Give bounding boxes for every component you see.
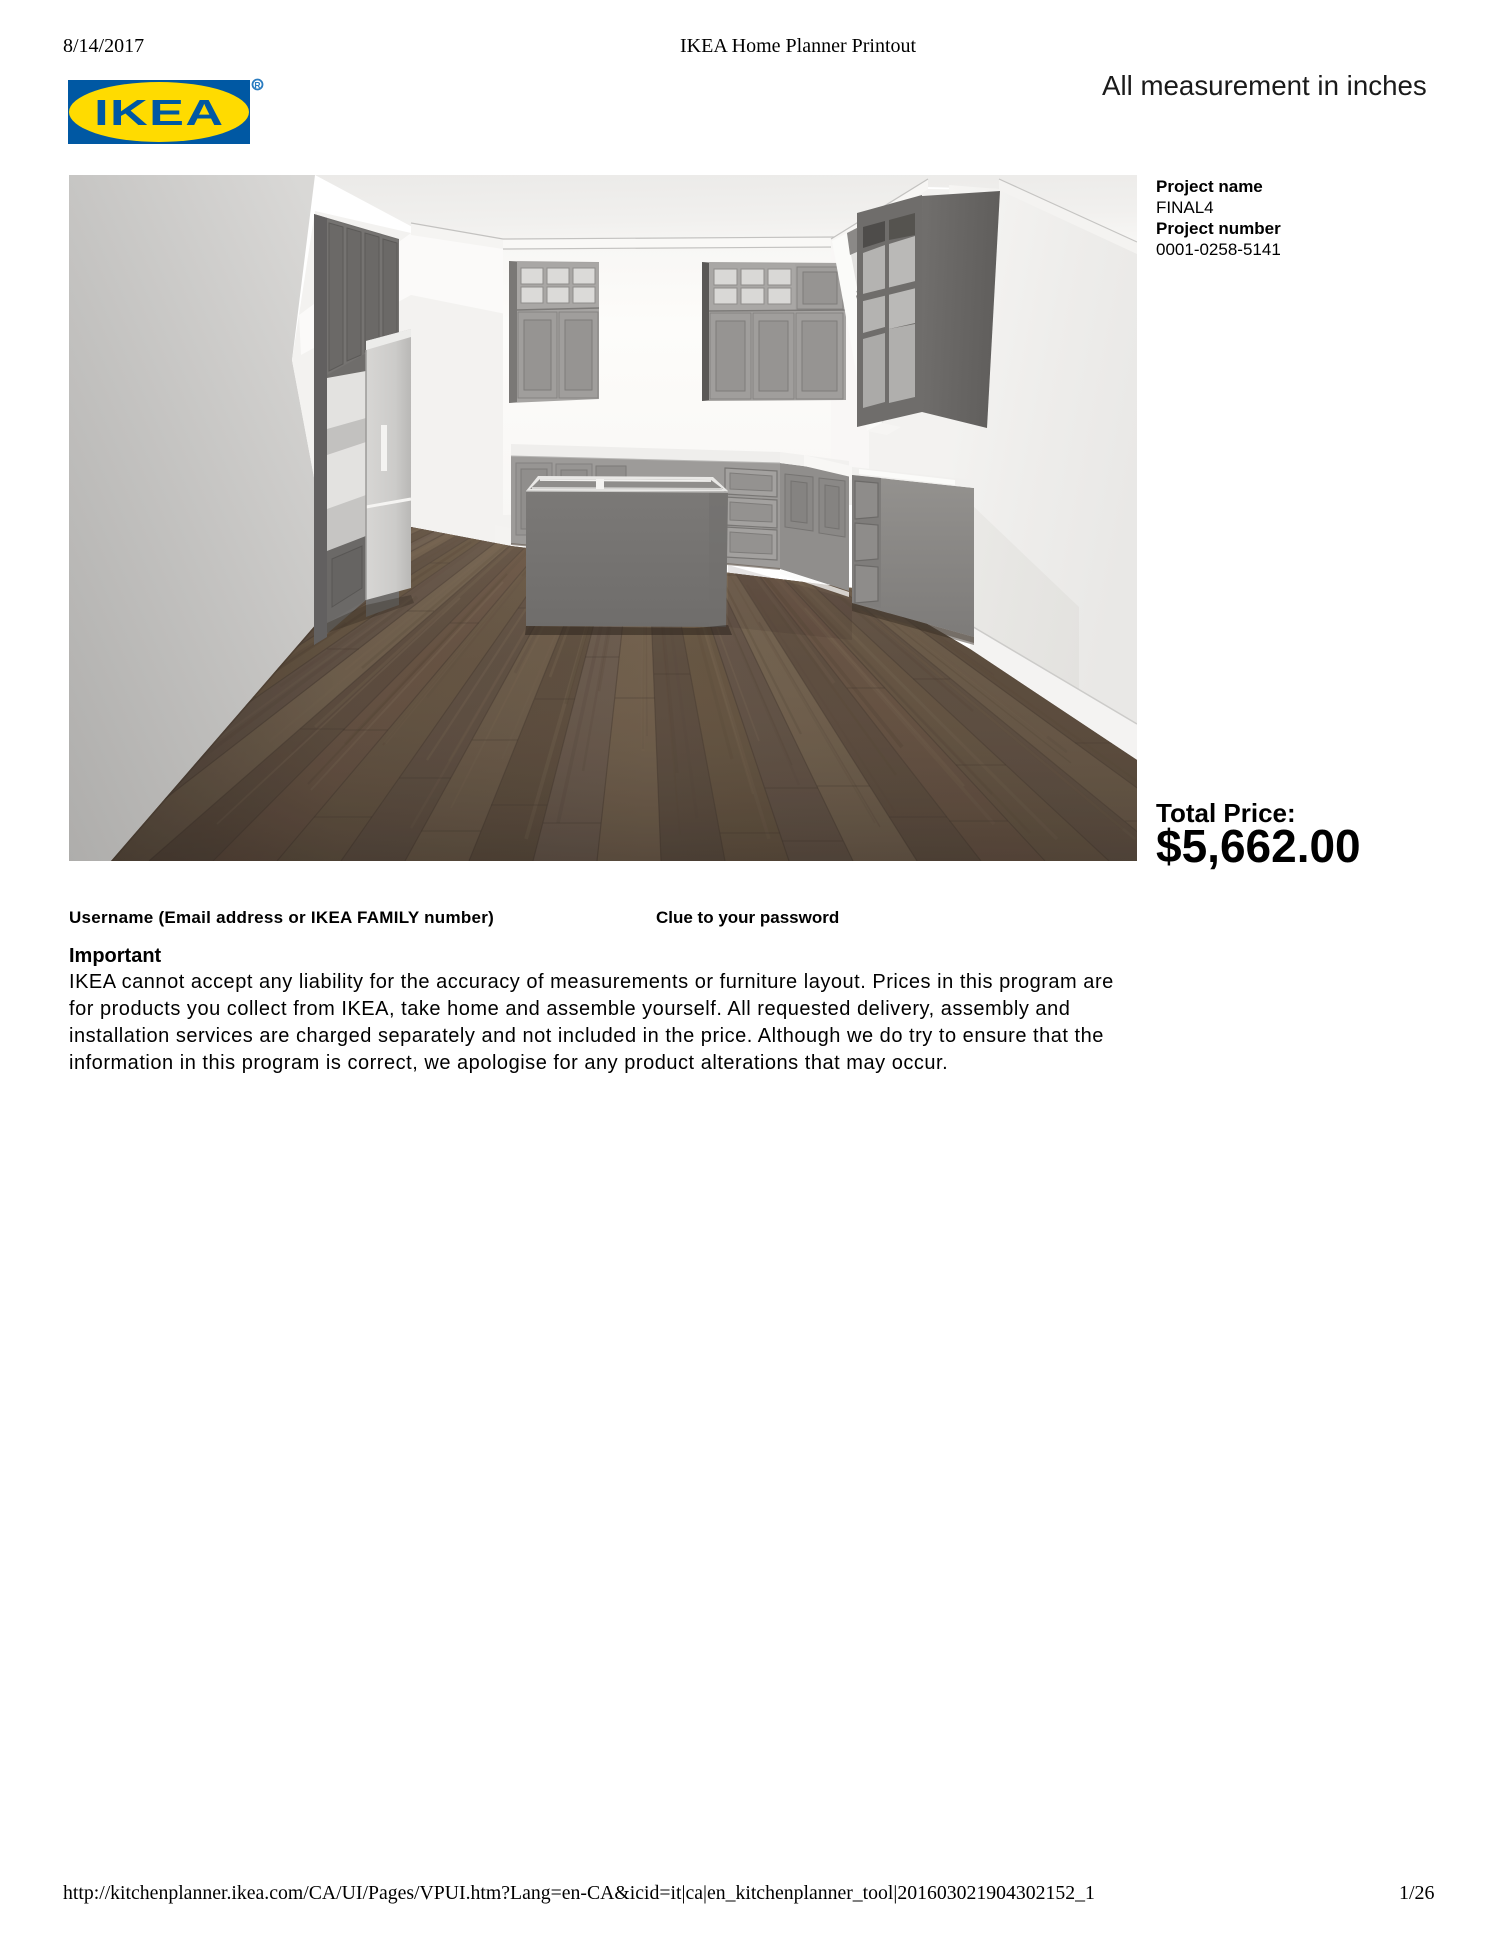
svg-text:R: R [254, 80, 260, 90]
svg-text:IKEA: IKEA [94, 92, 224, 133]
